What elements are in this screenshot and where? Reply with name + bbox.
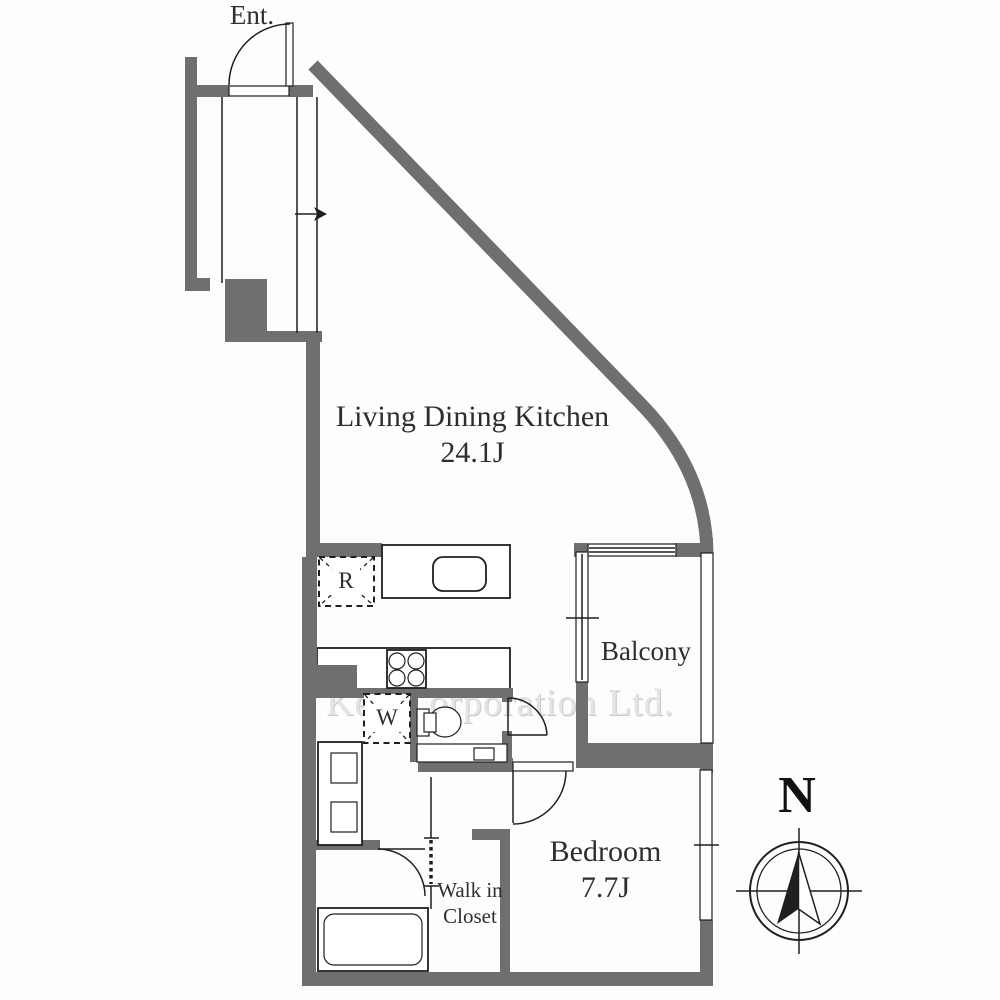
- entrance-label: Ent.: [212, 0, 292, 30]
- wall-segment: [700, 920, 713, 973]
- entrance-door-sill: [229, 86, 289, 96]
- balcony-sliding-window: [588, 544, 676, 556]
- wall-segment: [576, 680, 588, 745]
- bedroom-door-swing-arc: [513, 771, 566, 824]
- kitchen-sink: [433, 557, 486, 591]
- compass-needle-right: [799, 852, 821, 924]
- stove-burner: [389, 670, 405, 686]
- wall-segment: [675, 543, 703, 557]
- curved-exterior-wall: [313, 65, 707, 556]
- ldk-room-label: Living Dining Kitchen: [320, 400, 625, 434]
- washer-label: W: [373, 704, 401, 732]
- bedroom-door-leaf: [513, 762, 573, 771]
- balcony-label: Balcony: [590, 635, 702, 667]
- wall-segment: [185, 278, 210, 291]
- wall-segment: [185, 57, 197, 290]
- washroom-door-swing-arc: [378, 849, 425, 896]
- wall-segment: [700, 748, 713, 773]
- wall-segment: [302, 690, 316, 986]
- stove-burner: [389, 653, 405, 669]
- stove-burner: [408, 653, 424, 669]
- bathtub: [324, 914, 422, 965]
- floorplan-canvas: Ken Corporation Ltd.: [0, 0, 1000, 1000]
- balcony-railing: [701, 553, 713, 743]
- toilet-seat-box: [424, 713, 436, 732]
- toilet-door-swing-arc: [508, 698, 547, 735]
- wall-segment: [302, 972, 713, 986]
- wall-segment: [576, 743, 713, 768]
- refrigerator-label: R: [332, 567, 360, 595]
- wall-segment: [306, 543, 382, 557]
- floorplan-graphics: [0, 0, 1000, 1000]
- ldk-size-label: 24.1J: [320, 436, 625, 470]
- vanity-basin: [331, 802, 357, 832]
- wall-segment: [502, 688, 512, 702]
- compass-north-label: N: [769, 768, 825, 824]
- entrance-door-leaf: [286, 23, 293, 86]
- compass-needle-left: [777, 852, 799, 924]
- vanity-basin: [331, 753, 357, 783]
- toilet-counter-sink: [474, 748, 494, 760]
- walk-in-closet-line1: Walk in: [431, 877, 509, 903]
- bedroom-label: Bedroom: [503, 835, 708, 869]
- wall-segment: [289, 85, 313, 97]
- walk-in-closet-label: Walk in Closet: [431, 877, 509, 929]
- wall-segment: [306, 331, 320, 557]
- bedroom-size-label: 7.7J: [503, 871, 708, 905]
- walk-in-closet-line2: Closet: [431, 903, 509, 929]
- compass: [736, 828, 862, 954]
- entrance-door-swing-arc: [229, 24, 290, 85]
- stove-burner: [408, 670, 424, 686]
